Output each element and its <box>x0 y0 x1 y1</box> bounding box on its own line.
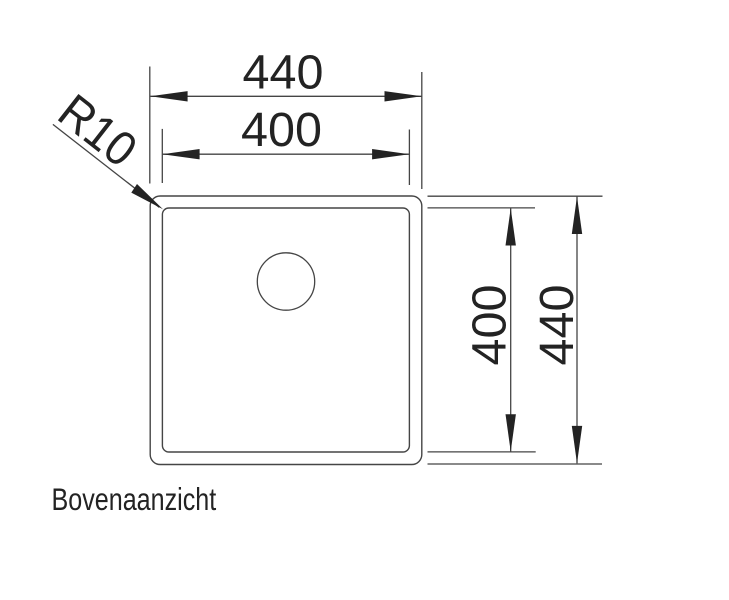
svg-text:Bovenaanzicht: Bovenaanzicht <box>52 482 217 517</box>
svg-text:440: 440 <box>243 46 324 100</box>
svg-text:400: 400 <box>463 285 517 366</box>
svg-text:400: 400 <box>241 103 322 157</box>
svg-text:440: 440 <box>530 285 584 366</box>
